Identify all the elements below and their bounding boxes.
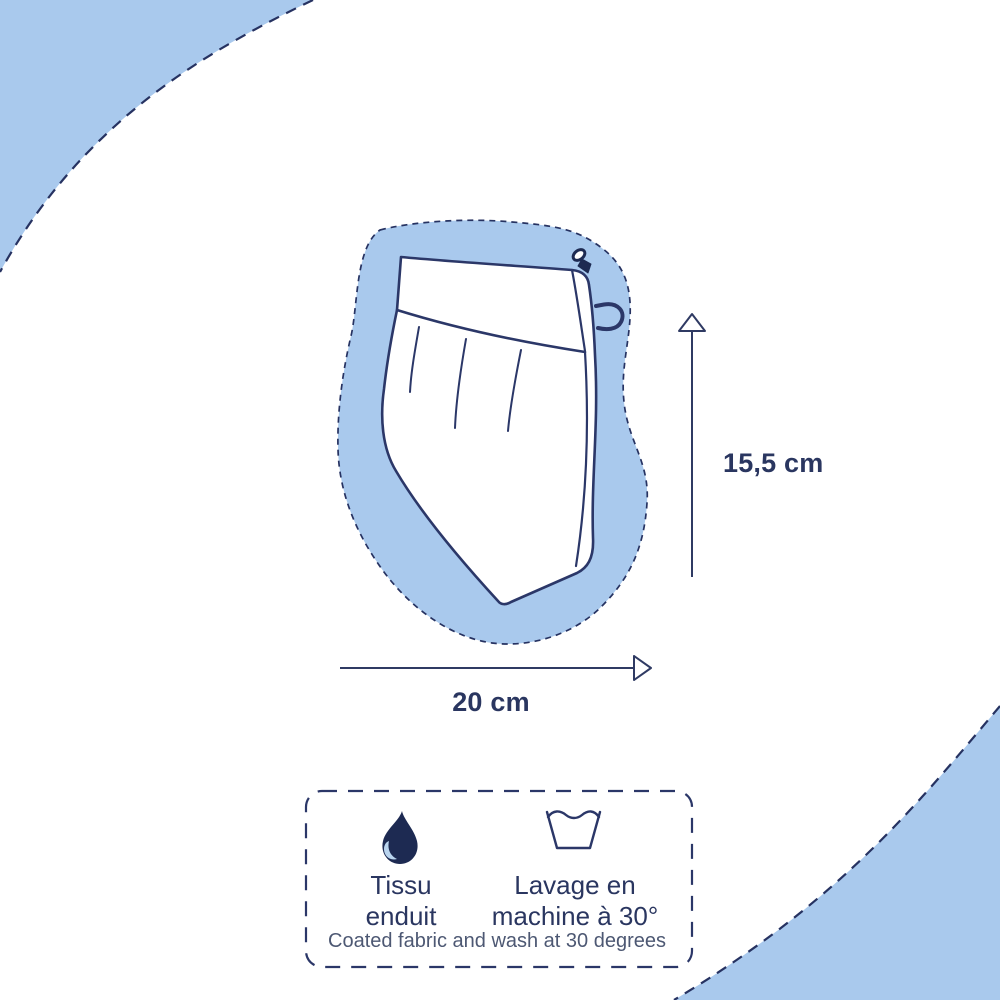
height-arrow: [679, 314, 705, 577]
up-arrow-icon: [679, 314, 705, 331]
wash-basin-icon: [547, 811, 600, 848]
bottom-right-corner-wave: [674, 706, 1000, 1000]
care-caption-en: Coated fabric and wash at 30 degrees: [328, 930, 666, 953]
fabric-label: Tissu enduit: [366, 870, 437, 932]
wash-label: Lavage en machine à 30°: [492, 870, 659, 932]
right-arrow-icon: [634, 656, 651, 680]
water-drop-icon: [382, 811, 417, 864]
product-infographic: 15,5 cm 20 cm Tissu enduit Lavage en mac…: [0, 0, 1000, 1000]
illustration-canvas: [0, 0, 1000, 1000]
width-arrow: [340, 656, 651, 680]
wash-label-line1: Lavage en: [492, 870, 659, 901]
width-dimension-label: 20 cm: [452, 687, 530, 718]
top-left-corner-wave: [0, 0, 313, 272]
height-dimension-label: 15,5 cm: [723, 448, 823, 479]
wash-label-line2: machine à 30°: [492, 901, 659, 932]
fabric-label-line2: enduit: [366, 901, 437, 932]
fabric-label-line1: Tissu: [366, 870, 437, 901]
